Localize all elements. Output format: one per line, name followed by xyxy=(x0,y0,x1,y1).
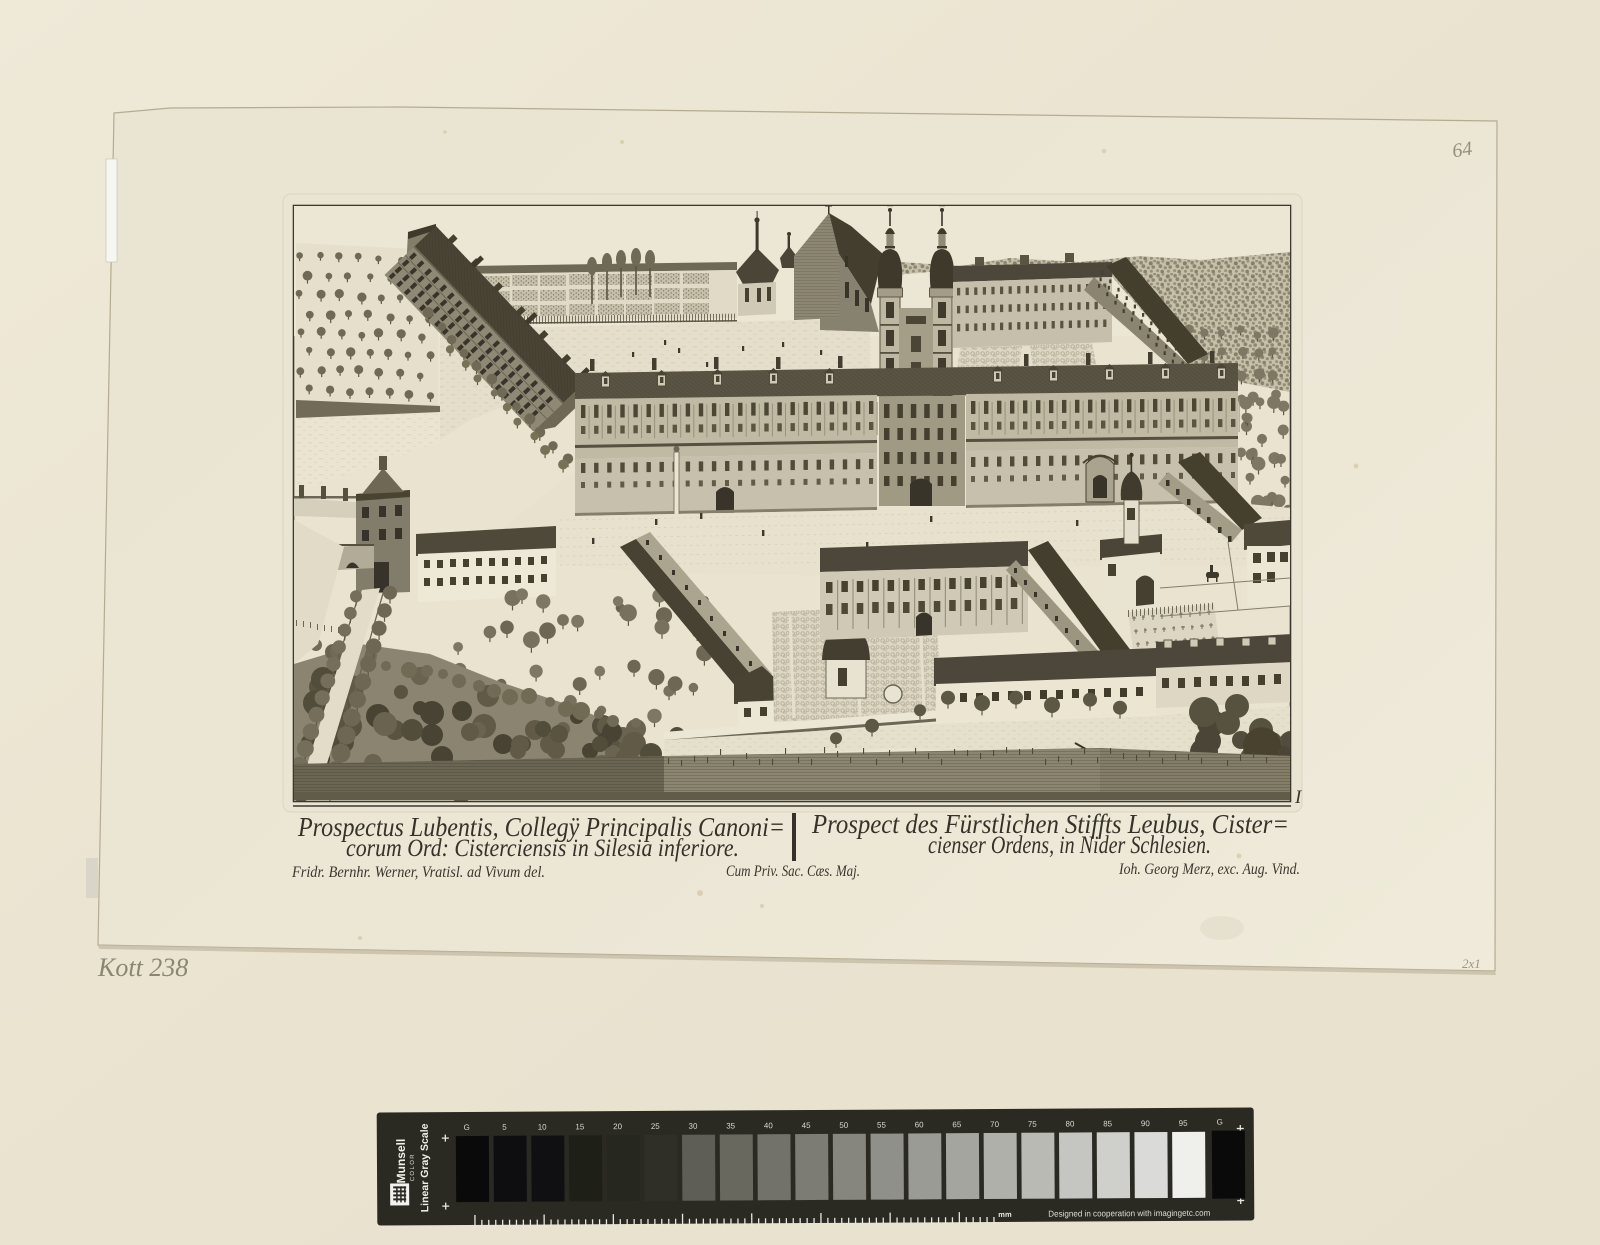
svg-text:Munsell: Munsell xyxy=(394,1139,408,1184)
svg-text:60: 60 xyxy=(915,1120,925,1129)
svg-text:corum Ord: Cisterciensis in Si: corum Ord: Cisterciensis in Silesia infe… xyxy=(346,835,739,862)
svg-text:Linear Gray Scale: Linear Gray Scale xyxy=(419,1123,432,1212)
svg-text:30: 30 xyxy=(688,1122,698,1131)
svg-text:20: 20 xyxy=(613,1122,623,1131)
svg-text:cienser Ordens, in Nider Schle: cienser Ordens, in Nider Schlesien. xyxy=(928,832,1211,859)
svg-text:Cum Priv. Sac. Cæs. Maj.: Cum Priv. Sac. Cæs. Maj. xyxy=(726,863,860,880)
svg-text:25: 25 xyxy=(651,1122,661,1131)
svg-text:Ioh. Georg Merz, exc. Aug. Vin: Ioh. Georg Merz, exc. Aug. Vind. xyxy=(1118,861,1300,878)
svg-text:Kott 238: Kott 238 xyxy=(97,953,188,982)
svg-text:5: 5 xyxy=(502,1123,507,1132)
svg-text:Designed in cooperation with i: Designed in cooperation with imagingetc.… xyxy=(1048,1208,1210,1219)
svg-text:35: 35 xyxy=(726,1121,736,1130)
svg-text:50: 50 xyxy=(839,1121,849,1130)
svg-text:85: 85 xyxy=(1103,1119,1113,1128)
svg-text:64: 64 xyxy=(1451,138,1474,163)
svg-text:Fridr. Bernhr. Werner, Vratisl: Fridr. Bernhr. Werner, Vratisl. ad Vivum… xyxy=(291,864,545,881)
svg-text:45: 45 xyxy=(802,1121,812,1130)
svg-text:15: 15 xyxy=(575,1122,585,1131)
svg-text:40: 40 xyxy=(764,1121,774,1130)
svg-text:70: 70 xyxy=(990,1120,1000,1129)
svg-text:75: 75 xyxy=(1028,1120,1038,1129)
svg-text:55: 55 xyxy=(877,1121,887,1130)
svg-text:2x1: 2x1 xyxy=(1462,956,1481,971)
svg-text:65: 65 xyxy=(952,1120,962,1129)
svg-text:G: G xyxy=(464,1123,470,1132)
svg-text:90: 90 xyxy=(1141,1119,1151,1128)
svg-text:G: G xyxy=(1217,1118,1223,1127)
svg-text:95: 95 xyxy=(1179,1119,1189,1128)
svg-text:10: 10 xyxy=(538,1123,548,1132)
svg-text:mm: mm xyxy=(998,1210,1012,1219)
svg-text:80: 80 xyxy=(1065,1120,1075,1129)
svg-text:COLOR: COLOR xyxy=(410,1153,416,1181)
